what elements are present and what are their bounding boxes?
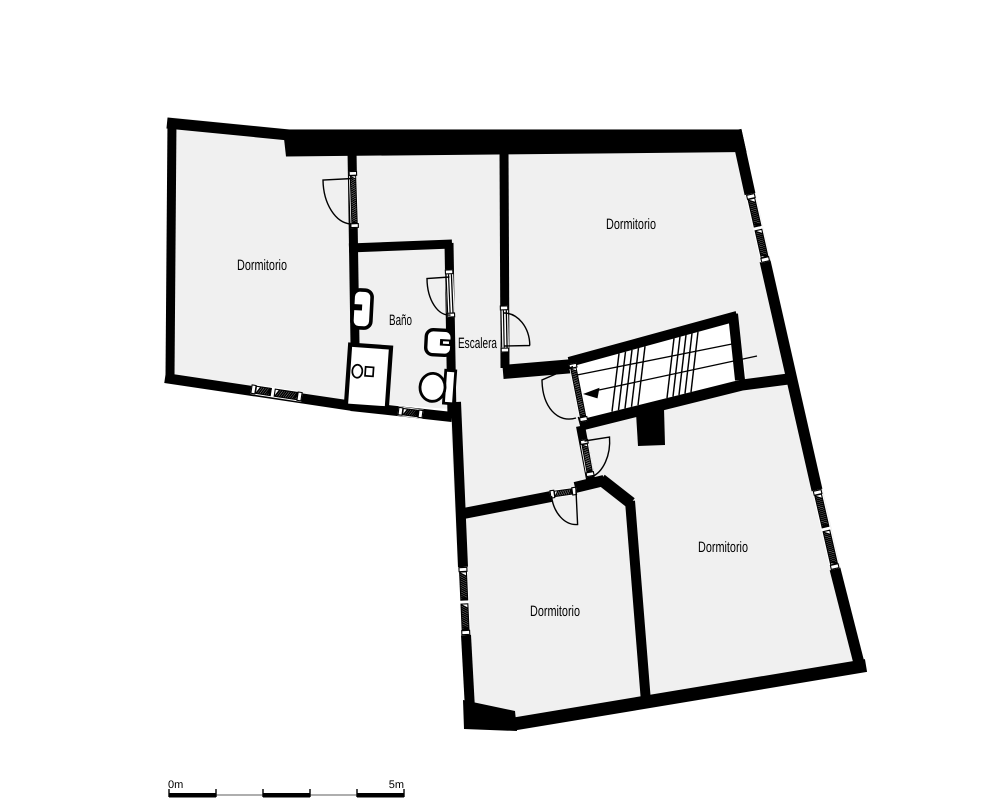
svg-text:0m: 0m	[168, 779, 183, 791]
svg-text:Baño: Baño	[389, 312, 412, 329]
svg-text:Dormitorio: Dormitorio	[698, 539, 748, 556]
svg-text:5m: 5m	[389, 779, 404, 791]
svg-text:Dormitorio: Dormitorio	[530, 603, 580, 620]
svg-text:Dormitorio: Dormitorio	[237, 257, 287, 274]
svg-text:Dormitorio: Dormitorio	[606, 216, 656, 233]
svg-text:Escalera: Escalera	[458, 335, 497, 352]
